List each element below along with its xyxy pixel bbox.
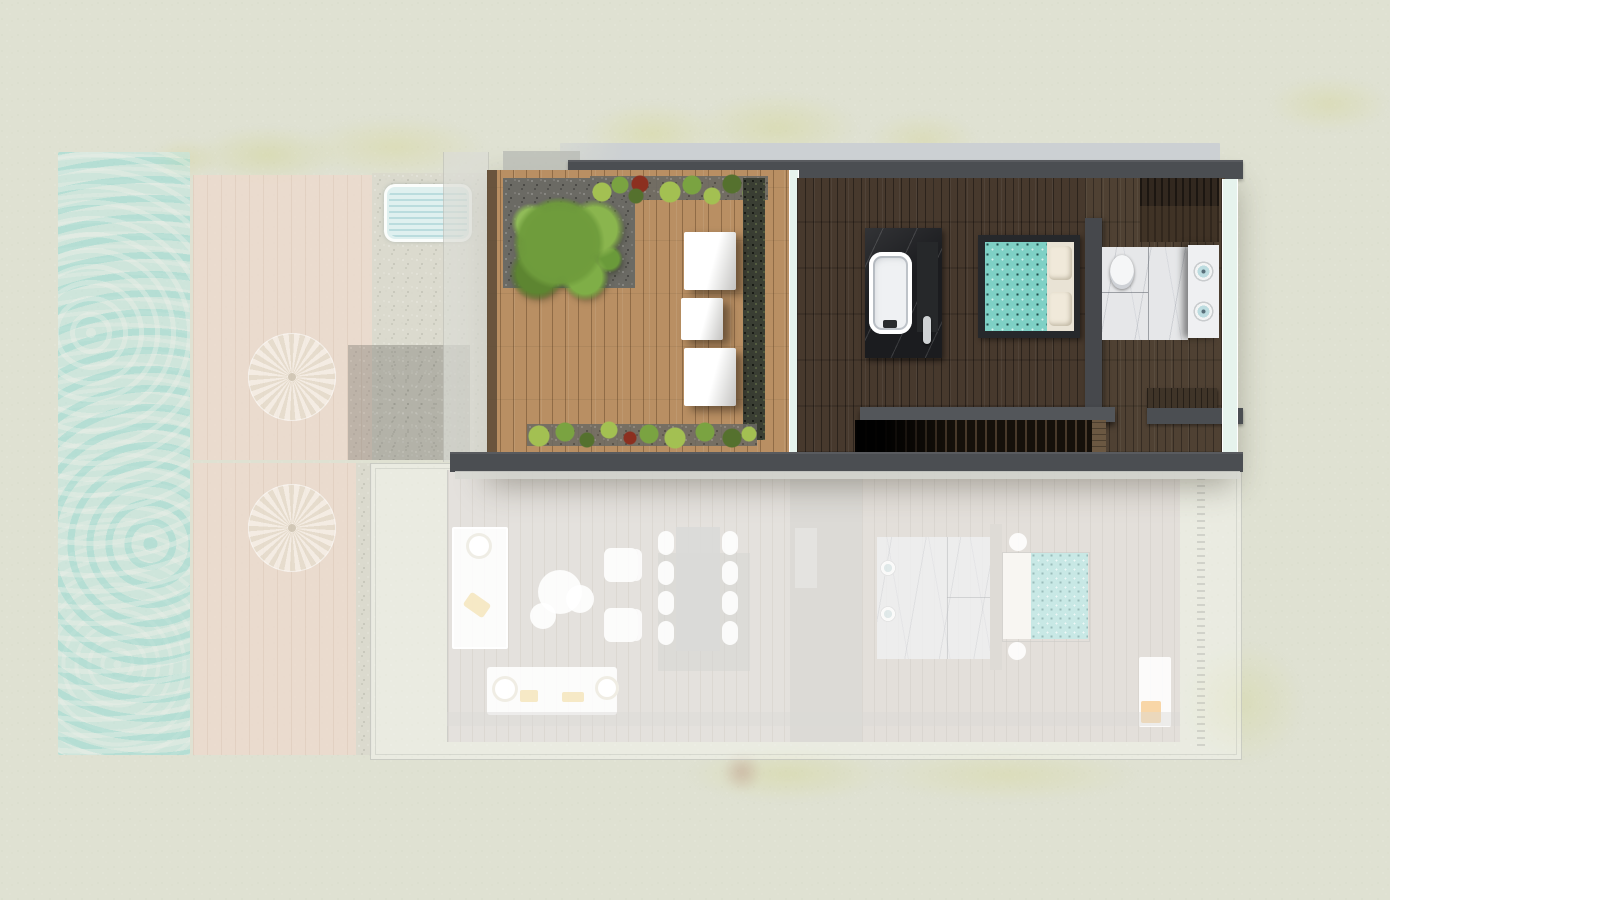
- bed-pillow: [1049, 292, 1072, 326]
- bottom-wall: [450, 452, 1243, 472]
- bathroom-marble-floor: [1102, 247, 1188, 340]
- bathtub-platform: [865, 228, 942, 358]
- parasol: [248, 333, 336, 421]
- marble-seam: [1148, 247, 1149, 340]
- armchair: [604, 548, 638, 582]
- coffee-table: [566, 585, 594, 613]
- shrub-faded: [1268, 76, 1390, 132]
- side-table: [492, 676, 518, 702]
- sink-ghost: [879, 559, 897, 577]
- dining-chair: [722, 591, 738, 615]
- lounger-side-table: [681, 298, 723, 340]
- upper-floor-active[interactable]: [443, 140, 1243, 480]
- stair-landing-ghost: [795, 528, 817, 588]
- sun-lounger: [684, 348, 736, 406]
- lower-floor-ghost[interactable]: [370, 463, 1242, 760]
- floor-plan-canvas: [0, 0, 1600, 900]
- side-table: [595, 676, 619, 700]
- bedside-table: [1008, 642, 1026, 660]
- marble-seam: [947, 537, 948, 659]
- wood-bench: [1147, 388, 1217, 410]
- bed-ghost: [1002, 552, 1090, 642]
- stair-shaft-ghost: [790, 470, 862, 742]
- sink: [1193, 301, 1214, 322]
- coffee-table: [530, 603, 556, 629]
- roof-terrace: [487, 170, 789, 453]
- terrace-slab-band: [447, 712, 1180, 726]
- vanity-counter: [1188, 245, 1219, 338]
- bathtub-control: [883, 320, 897, 328]
- chaise-cushion: [466, 533, 492, 559]
- bed-duvet: [985, 242, 1047, 331]
- planted-border-top: [590, 170, 768, 212]
- dining-chair: [658, 531, 674, 555]
- armchair: [604, 608, 638, 642]
- bed-duvet-ghost: [1031, 553, 1088, 639]
- dining-chair: [658, 561, 674, 585]
- bed-pillow: [1049, 246, 1072, 280]
- bathtub: [869, 252, 912, 334]
- bathroom-marble-ghost: [877, 537, 993, 659]
- wardrobe: [1140, 178, 1219, 242]
- dining-chair: [658, 591, 674, 615]
- sink-ghost: [879, 605, 897, 623]
- planter-plants: [590, 170, 768, 212]
- parasol: [248, 484, 336, 572]
- glass-wall-right: [1222, 179, 1238, 453]
- blank-side-panel: [1390, 0, 1600, 900]
- planted-border-bottom: [527, 416, 757, 453]
- privacy-hedge: [743, 178, 765, 440]
- dining-chair: [658, 621, 674, 645]
- trellis-edge: [1197, 478, 1205, 746]
- marble-seam: [1102, 292, 1148, 293]
- double-bed: [978, 235, 1080, 338]
- throw-blanket: [562, 692, 584, 702]
- slab-edge: [455, 471, 1240, 479]
- bed-pillows-ghost: [1003, 553, 1031, 639]
- towel-rail-handle: [923, 316, 931, 344]
- sink: [1193, 261, 1214, 282]
- pool: [58, 152, 190, 755]
- dining-chair: [722, 621, 738, 645]
- wardrobe-lower: [1140, 206, 1219, 242]
- dining-chair: [722, 561, 738, 585]
- dining-chair: [722, 531, 738, 555]
- headboard-partition: [1085, 218, 1102, 426]
- dining-table: [676, 527, 720, 651]
- deck-edge: [487, 170, 497, 453]
- sun-lounger: [684, 232, 736, 290]
- headboard-partition-ghost: [990, 524, 1002, 670]
- ghost-left-wall: [443, 152, 489, 462]
- toilet: [1110, 255, 1134, 289]
- bedside-table: [1009, 533, 1027, 551]
- planter-plants: [527, 416, 757, 453]
- stair-landing-step: [1092, 420, 1106, 453]
- staircase: [855, 420, 1092, 453]
- throw-blanket: [520, 690, 538, 702]
- marble-seam: [947, 597, 993, 598]
